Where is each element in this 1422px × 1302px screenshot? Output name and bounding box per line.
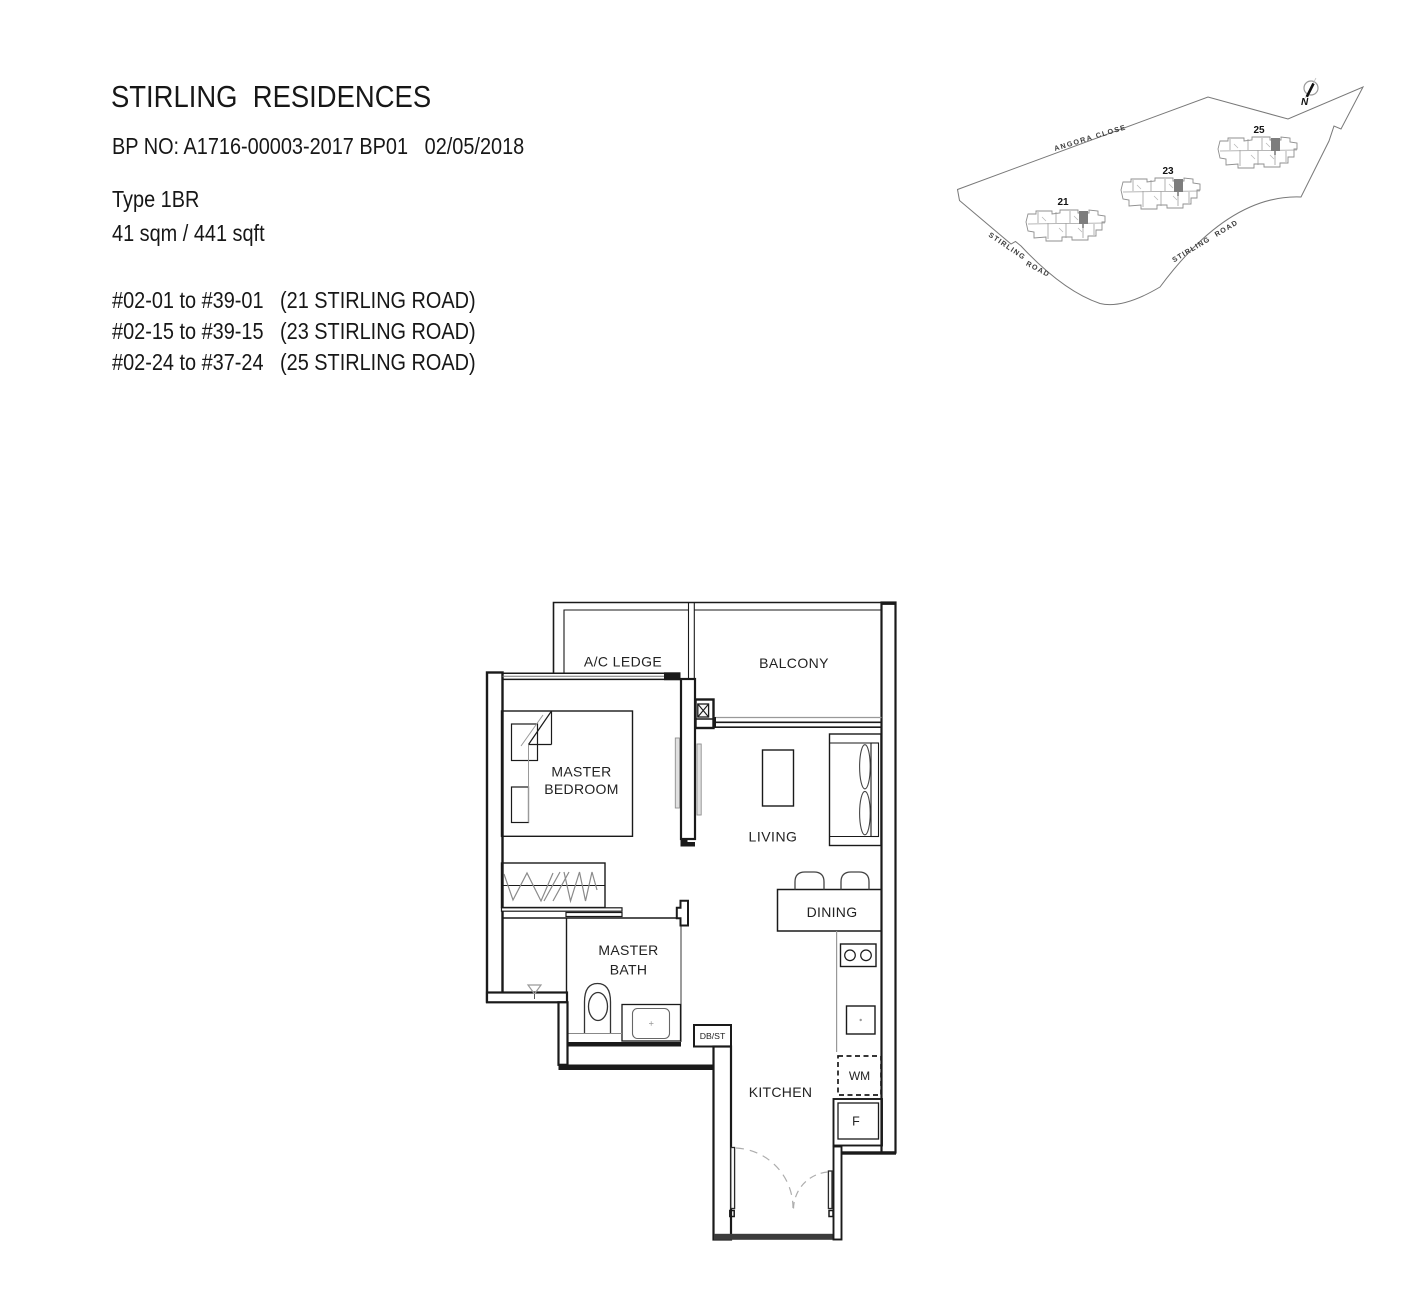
svg-text:DINING: DINING: [807, 904, 858, 920]
svg-text:MASTER: MASTER: [551, 764, 611, 780]
svg-text:F: F: [852, 1115, 860, 1129]
svg-text:BALCONY: BALCONY: [759, 655, 829, 671]
svg-text:ANGORA CLOSE: ANGORA CLOSE: [1053, 122, 1128, 153]
svg-text:ROAD: ROAD: [1025, 259, 1052, 279]
svg-text:DB/ST: DB/ST: [700, 1031, 726, 1041]
svg-text:LIVING: LIVING: [749, 829, 798, 845]
svg-text:WM: WM: [849, 1069, 870, 1083]
svg-text:KITCHEN: KITCHEN: [749, 1084, 813, 1100]
svg-text:STIRLING ROAD: STIRLING ROAD: [1170, 218, 1239, 265]
svg-text:21: 21: [1057, 197, 1069, 208]
svg-text:MASTER: MASTER: [598, 942, 658, 958]
svg-text:BEDROOM: BEDROOM: [544, 781, 618, 797]
svg-text:23: 23: [1162, 166, 1174, 177]
svg-text:25: 25: [1253, 125, 1265, 136]
svg-text:N: N: [1301, 97, 1309, 108]
svg-text:BATH: BATH: [610, 962, 648, 978]
svg-text:A/C LEDGE: A/C LEDGE: [584, 654, 662, 670]
